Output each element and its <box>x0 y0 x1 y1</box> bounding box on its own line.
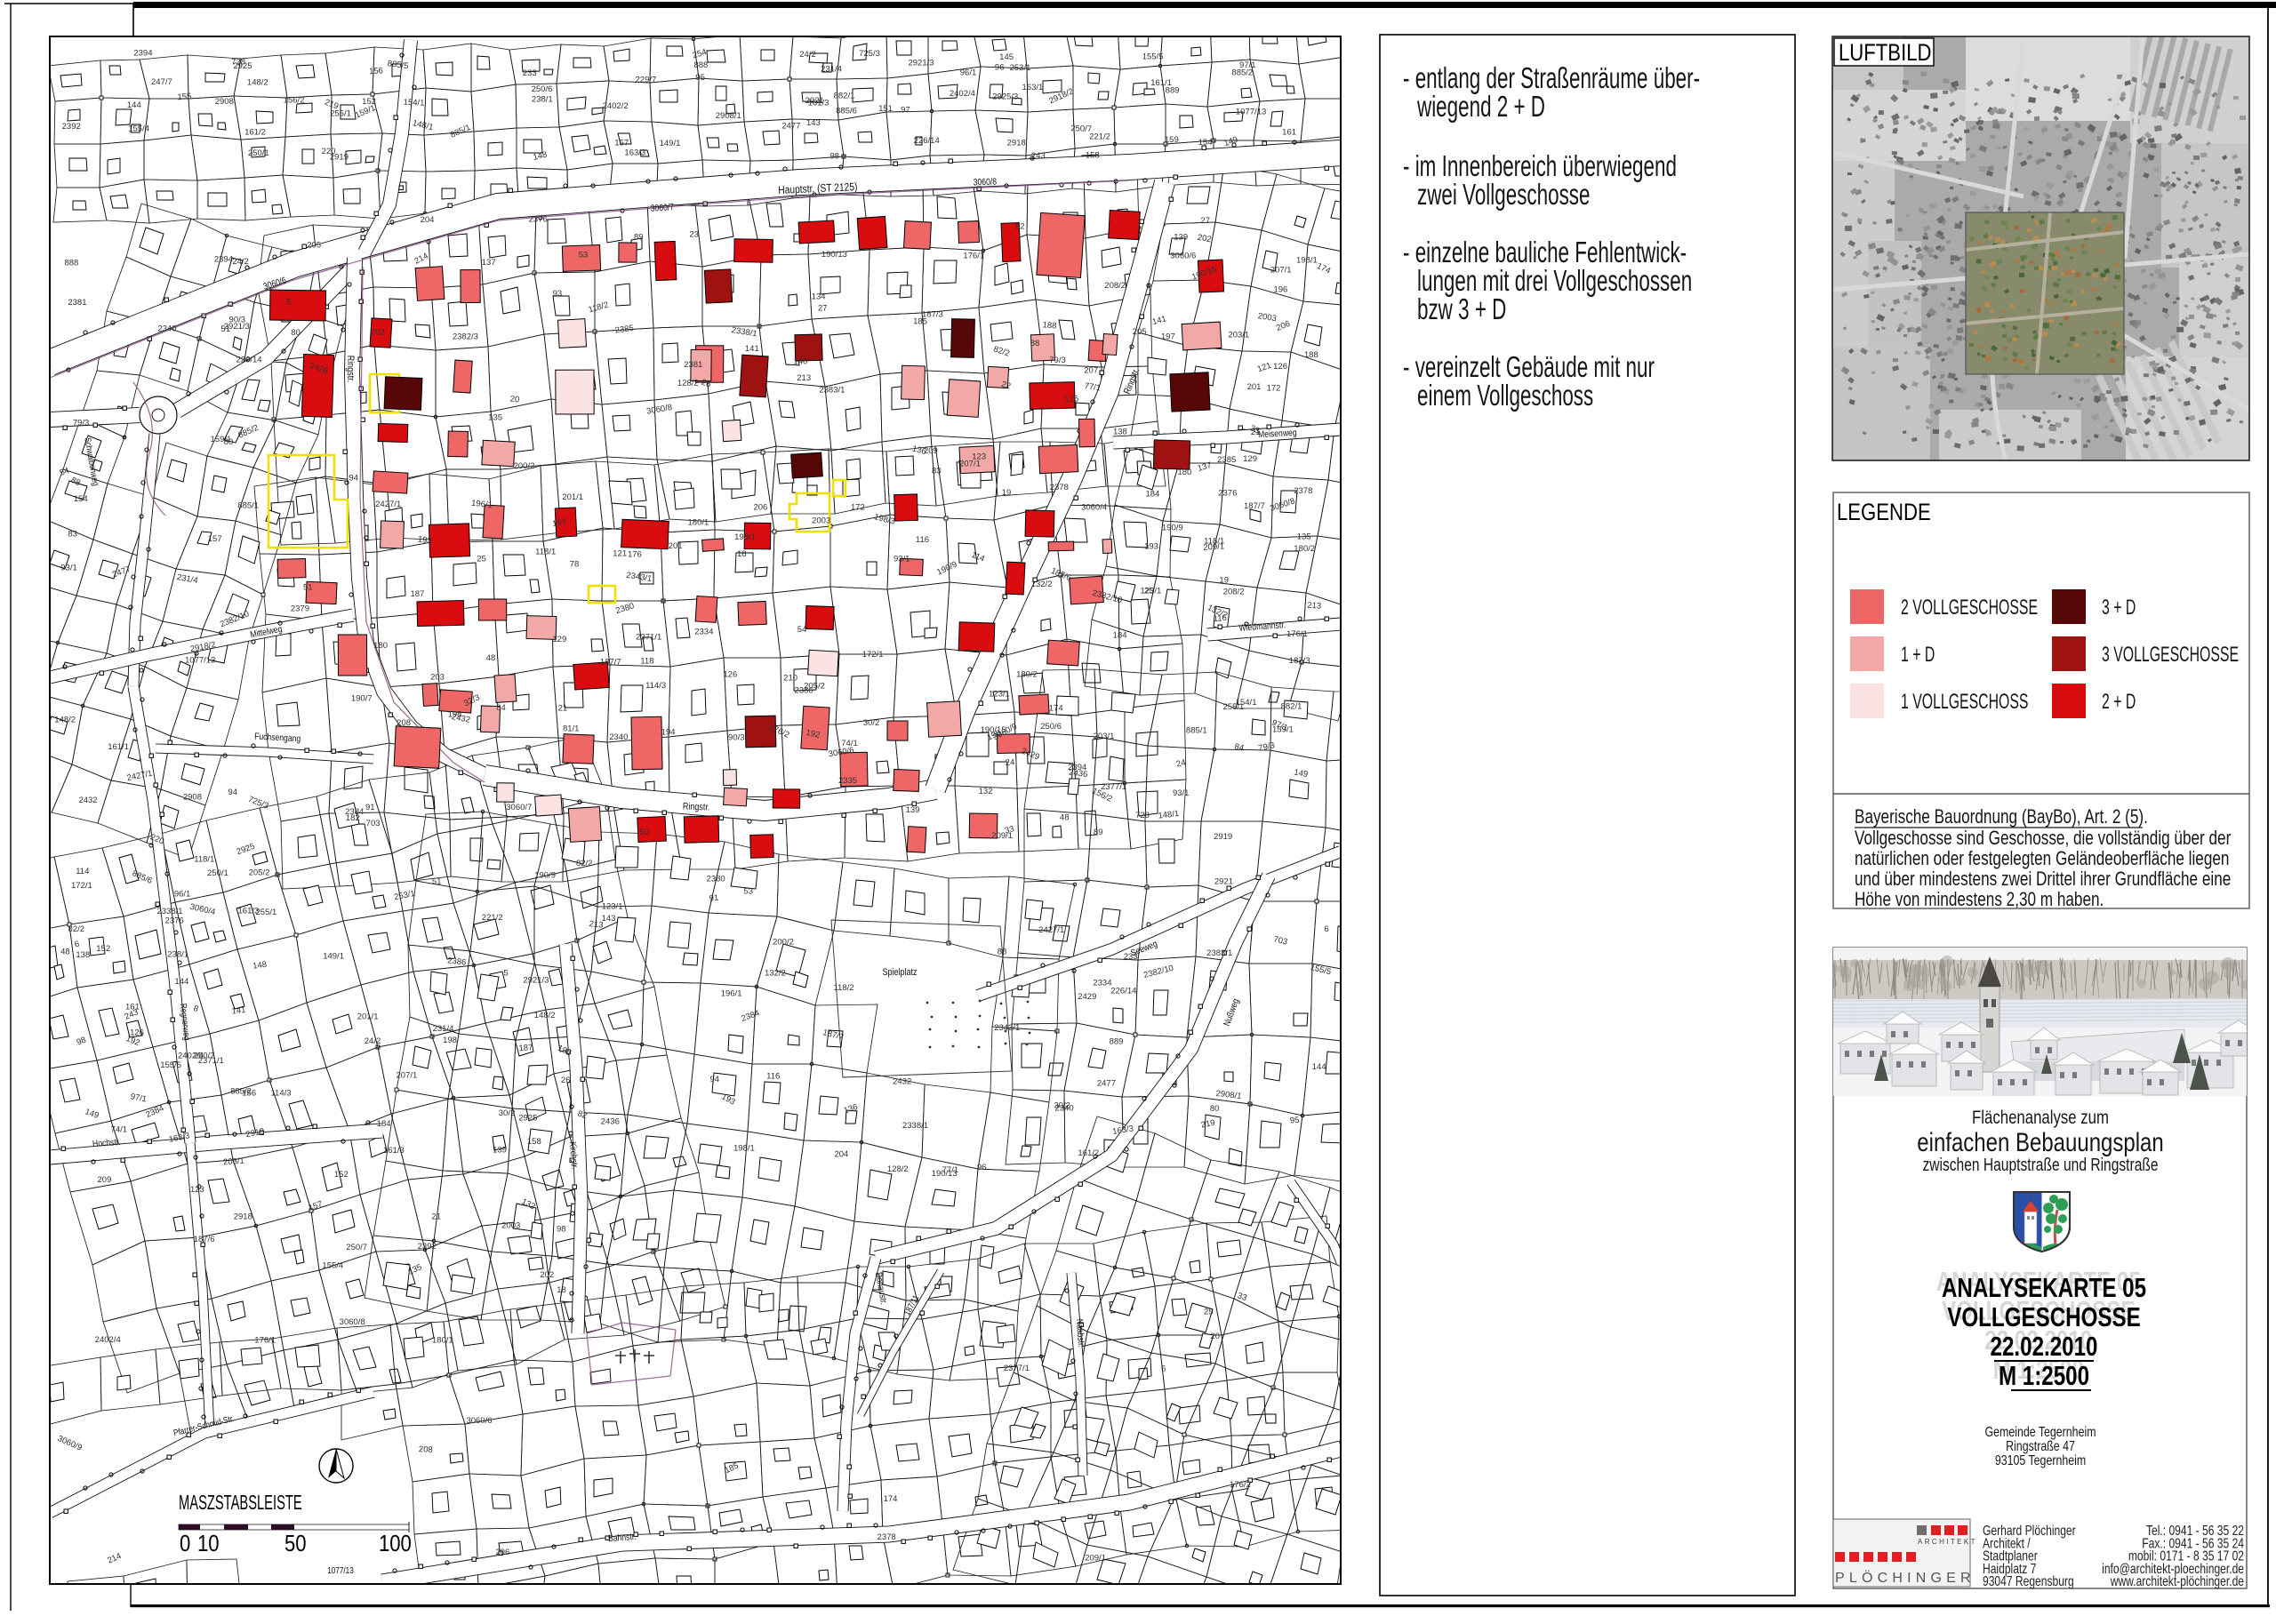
svg-text:20: 20 <box>509 395 519 405</box>
svg-text:209: 209 <box>97 1175 111 1185</box>
svg-text:208/2: 208/2 <box>1104 281 1126 291</box>
svg-text:118/1: 118/1 <box>194 854 214 864</box>
svg-text:184: 184 <box>1113 630 1127 640</box>
svg-text:93/1: 93/1 <box>894 555 910 564</box>
svg-text:139: 139 <box>493 1146 507 1156</box>
svg-text:128/2: 128/2 <box>677 379 699 388</box>
svg-text:25: 25 <box>477 554 486 564</box>
svg-text:197: 197 <box>1161 332 1175 341</box>
svg-text:148/2: 148/2 <box>54 716 76 725</box>
svg-text:190/9: 190/9 <box>1162 524 1183 533</box>
svg-text:176/1: 176/1 <box>1286 629 1308 639</box>
svg-text:2371/1: 2371/1 <box>636 633 661 643</box>
svg-text:88: 88 <box>998 947 1007 956</box>
svg-text:93: 93 <box>553 289 563 299</box>
svg-text:703: 703 <box>366 819 381 828</box>
svg-text:Bayerische Bauordnung (BayBo),: Bayerische Bauordnung (BayBo), Art. 2 (5… <box>1855 806 2148 828</box>
svg-text:198/1: 198/1 <box>733 1143 755 1153</box>
svg-text:93047 Regensburg: 93047 Regensburg <box>1983 1573 2074 1589</box>
svg-text:114/3: 114/3 <box>270 1089 291 1099</box>
svg-text:185: 185 <box>913 316 927 326</box>
svg-text:231/4: 231/4 <box>821 65 842 75</box>
svg-text:2383/1: 2383/1 <box>1206 948 1232 958</box>
svg-text:148: 148 <box>252 960 268 972</box>
svg-text:19: 19 <box>1002 488 1012 498</box>
svg-text:2381: 2381 <box>684 360 702 370</box>
svg-text:24/2: 24/2 <box>799 50 816 60</box>
svg-text:2908/1: 2908/1 <box>716 111 741 121</box>
svg-text:3060/7: 3060/7 <box>650 203 674 214</box>
svg-text:1077/13: 1077/13 <box>1236 107 1266 116</box>
svg-text:889: 889 <box>1166 85 1180 95</box>
svg-text:98: 98 <box>829 152 839 162</box>
svg-text:53: 53 <box>743 886 753 896</box>
svg-text:203/1: 203/1 <box>1228 331 1249 340</box>
svg-text:PLÖCHINGER: PLÖCHINGER <box>1835 1570 1975 1586</box>
svg-text:94: 94 <box>228 788 237 797</box>
svg-text:176/1: 176/1 <box>254 1336 276 1346</box>
svg-text:83: 83 <box>68 530 77 540</box>
svg-text:3060/4: 3060/4 <box>1081 503 1107 513</box>
svg-text:2925: 2925 <box>518 1114 537 1124</box>
svg-text:180: 180 <box>1177 468 1191 477</box>
svg-text:201: 201 <box>669 541 683 551</box>
svg-text:226/14: 226/14 <box>1110 987 1136 996</box>
svg-text:885/1: 885/1 <box>1186 725 1207 735</box>
svg-text:885/2: 885/2 <box>230 1087 252 1097</box>
svg-text:208/2: 208/2 <box>1223 587 1245 596</box>
svg-text:190/7: 190/7 <box>351 694 373 704</box>
svg-text:2919: 2919 <box>1214 832 1232 842</box>
svg-text:5: 5 <box>286 297 291 307</box>
svg-text:1077/13: 1077/13 <box>185 656 215 666</box>
svg-text:203/1: 203/1 <box>1094 732 1115 741</box>
svg-text:190/9: 190/9 <box>534 871 556 881</box>
svg-text:1 VOLLGESCHOSS: 1 VOLLGESCHOSS <box>1901 691 2028 714</box>
svg-text:116: 116 <box>766 1071 780 1081</box>
svg-text:145: 145 <box>999 52 1014 62</box>
svg-text:885/6: 885/6 <box>836 107 857 116</box>
svg-text:48: 48 <box>486 653 496 663</box>
svg-text:89: 89 <box>1094 828 1103 837</box>
svg-text:161: 161 <box>125 1003 140 1012</box>
svg-text:2343/1: 2343/1 <box>994 1023 1020 1033</box>
svg-text:2340: 2340 <box>157 324 176 333</box>
svg-text:187/3: 187/3 <box>1289 656 1310 666</box>
svg-text:3 VOLLGESCHOSSE: 3 VOLLGESCHOSSE <box>2102 644 2239 667</box>
svg-text:zwei Vollgeschosse: zwei Vollgeschosse <box>1417 178 1590 211</box>
svg-text:51: 51 <box>432 877 442 887</box>
svg-text:137: 137 <box>482 258 496 268</box>
svg-text:25: 25 <box>1204 1308 1214 1317</box>
svg-text:210: 210 <box>783 674 797 684</box>
svg-text:2402/4: 2402/4 <box>95 1335 121 1345</box>
svg-text:152: 152 <box>334 1170 349 1180</box>
svg-text:2394: 2394 <box>214 254 233 264</box>
svg-text:2378: 2378 <box>878 1532 896 1542</box>
svg-text:161/2: 161/2 <box>244 128 266 138</box>
svg-text:2921/3: 2921/3 <box>908 59 934 68</box>
svg-text:161/3: 161/3 <box>238 907 260 916</box>
svg-text:135: 135 <box>488 412 502 422</box>
svg-text:885/1: 885/1 <box>237 500 259 510</box>
svg-text:Bahnstr.: Bahnstr. <box>608 1532 637 1544</box>
svg-text:www.architekt-plöchinger.de: www.architekt-plöchinger.de <box>2110 1573 2244 1589</box>
svg-text:1077/13: 1077/13 <box>327 1565 354 1575</box>
svg-text:2432: 2432 <box>893 1076 911 1086</box>
svg-text:93105 Tegernheim: 93105 Tegernheim <box>1995 1452 2086 1468</box>
svg-text:889: 889 <box>1110 1037 1124 1047</box>
svg-text:149/1: 149/1 <box>660 139 681 148</box>
svg-text:238/1: 238/1 <box>167 949 188 959</box>
svg-text:161/1: 161/1 <box>108 742 129 752</box>
svg-text:Flächenanalyse zum: Flächenanalyse zum <box>1972 1108 2109 1128</box>
svg-text:80: 80 <box>1210 1104 1220 1114</box>
svg-text:2379: 2379 <box>291 604 309 613</box>
svg-text:90/3: 90/3 <box>229 315 246 324</box>
svg-text:2380: 2380 <box>707 875 725 884</box>
svg-text:143: 143 <box>602 914 616 924</box>
svg-text:2 VOLLGESCHOSSE: 2 VOLLGESCHOSSE <box>1901 596 2038 620</box>
svg-text:27: 27 <box>1200 216 1210 226</box>
svg-text:und über mindestens zwei Dritt: und über mindestens zwei Drittel ihrer G… <box>1855 868 2231 891</box>
svg-text:94: 94 <box>349 474 358 484</box>
svg-text:83: 83 <box>932 466 942 476</box>
svg-text:209: 209 <box>924 446 938 456</box>
svg-text:25: 25 <box>1144 586 1154 596</box>
svg-text:2378: 2378 <box>1294 486 1312 496</box>
svg-text:200/2: 200/2 <box>514 461 535 471</box>
svg-text:118: 118 <box>640 657 653 667</box>
svg-text:30/2: 30/2 <box>499 1108 516 1118</box>
svg-text:20: 20 <box>1211 1332 1221 1341</box>
svg-text:184: 184 <box>1145 489 1159 499</box>
svg-text:2338/1: 2338/1 <box>156 907 182 916</box>
svg-text:Meisenweg: Meisenweg <box>1258 428 1297 440</box>
svg-text:118/2: 118/2 <box>833 983 853 993</box>
svg-text:2003: 2003 <box>812 516 830 526</box>
svg-text:2925: 2925 <box>233 61 252 71</box>
svg-text:27: 27 <box>818 303 828 313</box>
svg-text:Ringstr.: Ringstr. <box>345 356 356 383</box>
svg-text:226/14: 226/14 <box>914 136 940 146</box>
svg-text:2003: 2003 <box>501 1221 520 1231</box>
svg-text:207: 207 <box>1084 365 1098 375</box>
svg-text:198/1: 198/1 <box>1296 256 1318 266</box>
svg-text:201/1: 201/1 <box>357 1012 379 1021</box>
svg-text:187/6: 187/6 <box>194 1235 215 1244</box>
svg-text:154: 154 <box>74 494 88 504</box>
svg-text:2340: 2340 <box>1055 1104 1074 1114</box>
svg-text:1 + D: 1 + D <box>1901 644 1935 667</box>
svg-text:2376: 2376 <box>529 215 548 225</box>
svg-text:152: 152 <box>96 944 110 954</box>
svg-text:135: 135 <box>1297 532 1311 542</box>
svg-text:144: 144 <box>174 977 188 987</box>
svg-text:90/3: 90/3 <box>728 733 745 743</box>
svg-text:161: 161 <box>1282 127 1296 137</box>
svg-text:24: 24 <box>1005 757 1014 768</box>
svg-text:202: 202 <box>371 328 385 338</box>
svg-text:95: 95 <box>1289 1116 1299 1126</box>
svg-text:Ringstr.: Ringstr. <box>683 802 710 813</box>
svg-text:123/1: 123/1 <box>602 902 623 912</box>
svg-text:82: 82 <box>1015 222 1025 232</box>
svg-text:187: 187 <box>518 1043 533 1053</box>
svg-text:96: 96 <box>977 1163 987 1172</box>
svg-text:205: 205 <box>1133 327 1147 337</box>
svg-text:2918: 2918 <box>234 1212 252 1221</box>
svg-text:143: 143 <box>806 118 821 128</box>
svg-text:26: 26 <box>561 1076 571 1085</box>
svg-text:154/1: 154/1 <box>403 98 424 108</box>
svg-text:207/1: 207/1 <box>397 1070 418 1080</box>
svg-text:155/4: 155/4 <box>322 1261 343 1271</box>
svg-text:188: 188 <box>1304 350 1318 360</box>
svg-text:204: 204 <box>834 1149 848 1159</box>
svg-text:97: 97 <box>901 106 910 116</box>
svg-text:6: 6 <box>1161 1364 1166 1374</box>
svg-text:21: 21 <box>558 703 568 713</box>
svg-text:2386: 2386 <box>795 686 813 696</box>
svg-text:wiegend 2 + D: wiegend 2 + D <box>1416 90 1545 123</box>
svg-text:2392: 2392 <box>62 122 81 132</box>
svg-text:M 1:2500: M 1:2500 <box>1999 1360 2089 1391</box>
svg-text:2432: 2432 <box>78 796 97 805</box>
svg-text:132/2: 132/2 <box>1031 580 1053 589</box>
svg-text:91: 91 <box>709 893 719 904</box>
svg-text:2477: 2477 <box>1097 1078 1116 1088</box>
svg-text:157: 157 <box>614 138 629 148</box>
svg-text:96: 96 <box>995 63 1005 73</box>
svg-text:172/1: 172/1 <box>71 881 92 891</box>
svg-text:84: 84 <box>1233 742 1245 754</box>
svg-text:Spielplatz: Spielplatz <box>882 967 917 978</box>
svg-text:233: 233 <box>523 68 537 78</box>
svg-text:141: 141 <box>231 1005 246 1017</box>
svg-text:200/2: 200/2 <box>773 937 794 947</box>
svg-text:140: 140 <box>793 356 807 366</box>
svg-text:201: 201 <box>1247 382 1262 392</box>
svg-text:187/7: 187/7 <box>600 658 621 668</box>
svg-text:247/7: 247/7 <box>151 77 172 87</box>
svg-text:97/1: 97/1 <box>1239 60 1256 70</box>
svg-text:154/1: 154/1 <box>1236 698 1257 708</box>
svg-text:128/2: 128/2 <box>887 1164 909 1174</box>
svg-text:134: 134 <box>812 292 826 301</box>
svg-text:2919: 2919 <box>330 153 349 163</box>
svg-text:82/2: 82/2 <box>576 859 593 868</box>
svg-text:213: 213 <box>797 373 811 383</box>
svg-text:78: 78 <box>570 560 580 570</box>
svg-text:50: 50 <box>284 1531 307 1556</box>
svg-text:118/1: 118/1 <box>535 548 556 557</box>
svg-text:2392: 2392 <box>418 1242 437 1252</box>
svg-text:888: 888 <box>64 258 78 268</box>
svg-text:172: 172 <box>1267 384 1281 394</box>
svg-text:213: 213 <box>1307 601 1322 612</box>
svg-text:114: 114 <box>76 867 89 876</box>
svg-text:193: 193 <box>417 534 432 546</box>
svg-text:2436: 2436 <box>601 1116 620 1126</box>
svg-text:205: 205 <box>307 241 321 251</box>
svg-text:155: 155 <box>177 92 192 102</box>
svg-text:176: 176 <box>628 550 642 560</box>
svg-text:98: 98 <box>557 1224 566 1234</box>
svg-text:141: 141 <box>745 344 759 354</box>
svg-text:221/2: 221/2 <box>1089 132 1110 142</box>
svg-text:202: 202 <box>540 1270 554 1280</box>
svg-text:148/2: 148/2 <box>534 1011 556 1020</box>
svg-text:100: 100 <box>379 1531 412 1556</box>
svg-text:132/2: 132/2 <box>765 969 786 979</box>
svg-text:180/2: 180/2 <box>1016 670 1038 680</box>
svg-text:138: 138 <box>76 950 90 960</box>
svg-text:221/2: 221/2 <box>482 913 503 923</box>
svg-text:204: 204 <box>421 215 435 225</box>
svg-text:2921: 2921 <box>1214 876 1233 886</box>
svg-text:158: 158 <box>1086 150 1100 160</box>
svg-text:193: 193 <box>1144 542 1158 552</box>
svg-text:einem Vollgeschoss: einem Vollgeschoss <box>1417 379 1593 412</box>
svg-text:18: 18 <box>557 1285 566 1295</box>
svg-text:ARCHITEKT: ARCHITEKT <box>1918 1538 1977 1546</box>
svg-text:84: 84 <box>496 703 506 713</box>
svg-text:23: 23 <box>689 229 699 239</box>
svg-text:2377/1: 2377/1 <box>1004 1364 1030 1373</box>
svg-text:226/14: 226/14 <box>236 355 261 364</box>
svg-text:728: 728 <box>1135 811 1150 820</box>
svg-text:209/1: 209/1 <box>1203 541 1224 552</box>
svg-text:206: 206 <box>753 502 767 512</box>
svg-text:Höhe von mindestens 2,30 m hab: Höhe von mindestens 2,30 m haben. <box>1855 889 2104 911</box>
svg-text:zwischen Hauptstraße und Rings: zwischen Hauptstraße und Ringstraße <box>1922 1155 2158 1174</box>
svg-text:151: 151 <box>878 104 893 114</box>
svg-text:48: 48 <box>1060 813 1070 823</box>
svg-text:2427/1: 2427/1 <box>375 500 401 509</box>
svg-text:24/2: 24/2 <box>232 257 249 267</box>
svg-text:81/1: 81/1 <box>563 724 580 734</box>
svg-text:229/7: 229/7 <box>636 75 657 84</box>
svg-text:196/1: 196/1 <box>721 989 742 999</box>
svg-text:159: 159 <box>1165 135 1179 145</box>
svg-text:74/1: 74/1 <box>111 1125 128 1135</box>
svg-text:206: 206 <box>495 1548 509 1557</box>
svg-text:5: 5 <box>503 968 508 978</box>
svg-text:79/3: 79/3 <box>1049 356 1066 365</box>
svg-text:Hochstr.: Hochstr. <box>92 1137 121 1149</box>
svg-text:250/1: 250/1 <box>207 868 228 878</box>
svg-text:2376: 2376 <box>165 916 184 926</box>
svg-text:MASZSTABSLEISTE: MASZSTABSLEISTE <box>179 1492 302 1515</box>
svg-text:2385: 2385 <box>1217 455 1236 465</box>
svg-text:2402/4: 2402/4 <box>950 89 975 99</box>
svg-text:2908: 2908 <box>215 97 234 107</box>
svg-text:250/1: 250/1 <box>248 148 269 158</box>
svg-text:126: 126 <box>723 670 737 680</box>
svg-text:152: 152 <box>362 97 376 107</box>
svg-text:0: 0 <box>180 1531 190 1556</box>
svg-text:180: 180 <box>373 641 388 651</box>
svg-text:207/1: 207/1 <box>959 460 981 469</box>
svg-text:114/3: 114/3 <box>645 681 666 691</box>
svg-text:198: 198 <box>448 710 462 720</box>
svg-text:123: 123 <box>190 1185 204 1195</box>
svg-text:Vollgeschosse sind Geschosse,: Vollgeschosse sind Geschosse, die vollst… <box>1855 828 2232 850</box>
svg-text:255/1: 255/1 <box>330 109 351 119</box>
svg-text:194: 194 <box>661 727 676 737</box>
svg-text:209/1: 209/1 <box>1085 1554 1106 1564</box>
svg-text:94: 94 <box>710 1075 720 1084</box>
svg-text:2383/1: 2383/1 <box>819 386 845 396</box>
svg-text:93/1: 93/1 <box>60 564 77 573</box>
svg-text:155/5: 155/5 <box>1142 52 1164 62</box>
svg-text:163/1: 163/1 <box>1022 83 1044 92</box>
svg-text:144: 144 <box>1312 1062 1326 1072</box>
svg-text:50: 50 <box>639 828 649 837</box>
svg-text:96/1: 96/1 <box>960 68 977 77</box>
svg-text:2 + D: 2 + D <box>2102 691 2136 714</box>
svg-text:bzw 3 + D: bzw 3 + D <box>1417 292 1506 325</box>
svg-text:116: 116 <box>916 535 929 545</box>
svg-text:48: 48 <box>60 948 70 957</box>
svg-text:53: 53 <box>579 251 589 260</box>
svg-text:2394: 2394 <box>1068 763 1086 772</box>
svg-text:95: 95 <box>695 73 705 83</box>
svg-text:2402/2: 2402/2 <box>603 101 629 111</box>
svg-text:201/1: 201/1 <box>562 492 583 502</box>
svg-text:LEGENDE: LEGENDE <box>1837 500 1931 526</box>
svg-text:79/3: 79/3 <box>73 419 90 428</box>
svg-text:2477: 2477 <box>781 122 800 132</box>
svg-text:96/1: 96/1 <box>174 889 191 899</box>
svg-text:82/2: 82/2 <box>68 924 85 934</box>
svg-text:176/1: 176/1 <box>963 252 984 261</box>
svg-text:2908: 2908 <box>183 793 202 803</box>
svg-text:250/6: 250/6 <box>1040 722 1062 732</box>
svg-text:125: 125 <box>1064 394 1079 405</box>
svg-text:157: 157 <box>208 534 222 544</box>
svg-text:190/13: 190/13 <box>821 250 847 260</box>
svg-text:172: 172 <box>851 503 865 513</box>
svg-text:2371/1: 2371/1 <box>198 1056 224 1066</box>
svg-text:2340: 2340 <box>609 732 628 742</box>
svg-text:180/1: 180/1 <box>432 1335 453 1345</box>
svg-text:172/1: 172/1 <box>862 650 884 660</box>
svg-text:123/1: 123/1 <box>989 690 1010 700</box>
svg-text:155/4: 155/4 <box>128 124 149 133</box>
svg-text:30/2: 30/2 <box>863 718 880 728</box>
svg-text:Kirchstr.: Kirchstr. <box>567 1141 580 1170</box>
svg-text:203/1: 203/1 <box>223 1156 245 1168</box>
svg-text:121: 121 <box>613 548 627 558</box>
svg-text:2394: 2394 <box>133 49 152 59</box>
svg-text:91: 91 <box>365 803 375 812</box>
svg-text:3 + D: 3 + D <box>2102 596 2136 620</box>
svg-text:2338/1: 2338/1 <box>902 1121 928 1131</box>
svg-text:93/1: 93/1 <box>1173 788 1190 798</box>
svg-text:139: 139 <box>906 805 920 815</box>
svg-text:163/3: 163/3 <box>624 148 645 158</box>
svg-text:2429: 2429 <box>1078 992 1096 1002</box>
svg-text:einfachen Bebauungsplan: einfachen Bebauungsplan <box>1917 1126 2163 1156</box>
svg-text:51: 51 <box>303 583 313 593</box>
svg-text:3060/8: 3060/8 <box>974 177 998 188</box>
svg-text:207/1: 207/1 <box>1270 266 1292 276</box>
svg-text:203: 203 <box>430 672 445 682</box>
svg-text:208: 208 <box>419 1444 433 1455</box>
svg-text:3060/6: 3060/6 <box>466 1416 492 1426</box>
